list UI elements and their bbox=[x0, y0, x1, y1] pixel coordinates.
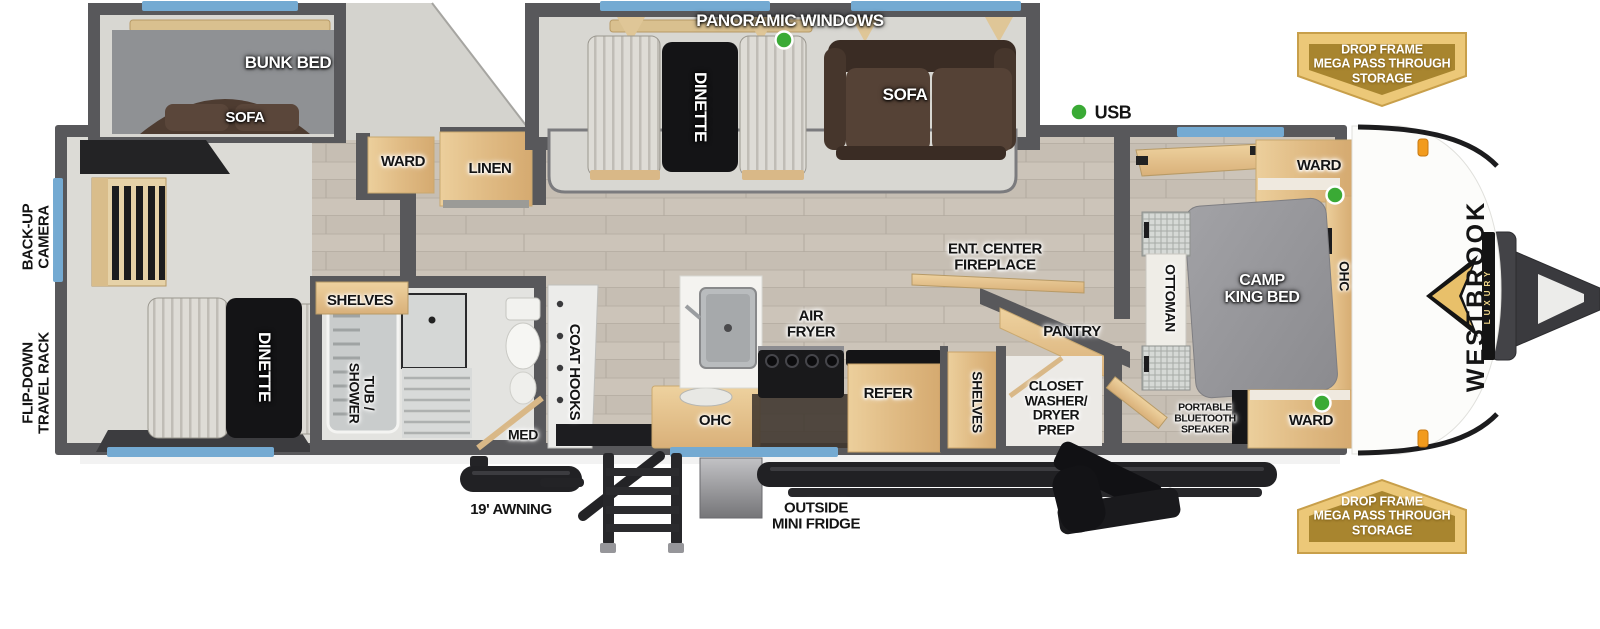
bunk-step bbox=[80, 140, 230, 174]
bath-shelves bbox=[316, 282, 408, 314]
toilet-tank bbox=[506, 298, 540, 320]
awning-roll bbox=[757, 462, 1277, 487]
shower-glass-door bbox=[402, 294, 466, 368]
toilet bbox=[506, 323, 540, 369]
bunk-room bbox=[88, 3, 540, 143]
linen-cabinet bbox=[440, 132, 532, 206]
ottoman bbox=[1142, 212, 1190, 390]
entry-steps bbox=[583, 453, 684, 553]
ward-bottom-led bbox=[1314, 395, 1331, 412]
entry-mat bbox=[556, 424, 666, 446]
marker-light-icon bbox=[1418, 139, 1428, 156]
dinette-bench bbox=[588, 36, 660, 176]
floorplan-graphic bbox=[0, 0, 1600, 629]
stove-counter bbox=[752, 394, 852, 448]
dinette-bench bbox=[148, 298, 228, 438]
camp-king-bed bbox=[1183, 197, 1338, 398]
cap-shell bbox=[1352, 126, 1501, 454]
ward-top-led bbox=[1327, 187, 1344, 204]
refrigerator bbox=[848, 364, 940, 452]
washer-dryer-closet bbox=[1006, 356, 1102, 446]
usb-port-led bbox=[1071, 104, 1088, 121]
bar-sink bbox=[680, 388, 732, 406]
closet-shelves bbox=[948, 352, 996, 448]
bathroom bbox=[310, 276, 546, 452]
coat-hooks-panel bbox=[548, 285, 598, 448]
floorplan-stage: PANORAMIC WINDOWS BUNK BED SOFA DINETTE … bbox=[0, 0, 1600, 629]
marker-light-icon bbox=[1418, 430, 1428, 447]
ward-cabinet-hall bbox=[368, 137, 434, 193]
outside-mini-fridge bbox=[700, 458, 762, 518]
luxury-strip bbox=[1482, 232, 1495, 360]
panoramic-window-led bbox=[776, 32, 793, 49]
sofa bbox=[824, 40, 1016, 160]
dinette-table bbox=[226, 298, 302, 438]
dinette-table bbox=[662, 42, 738, 172]
dinette-bench bbox=[740, 36, 806, 176]
front-cap bbox=[1352, 126, 1600, 454]
